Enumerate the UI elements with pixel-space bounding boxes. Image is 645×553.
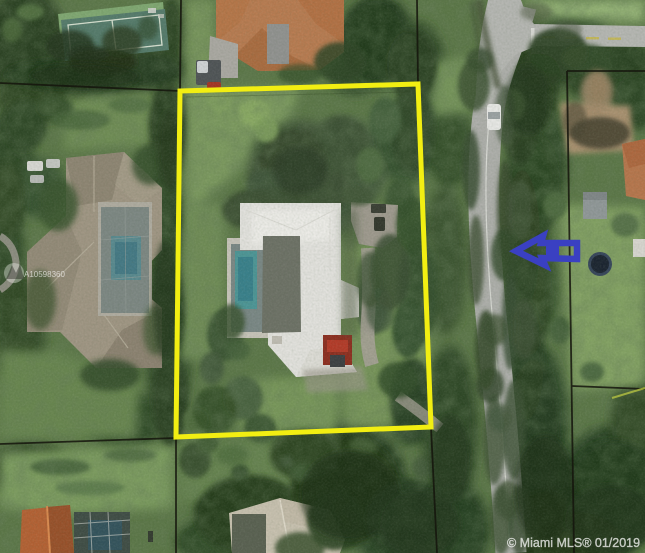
svg-text:© Miami MLS® 01/2019: © Miami MLS® 01/2019 (507, 536, 640, 550)
svg-text:A10598360: A10598360 (24, 270, 65, 279)
